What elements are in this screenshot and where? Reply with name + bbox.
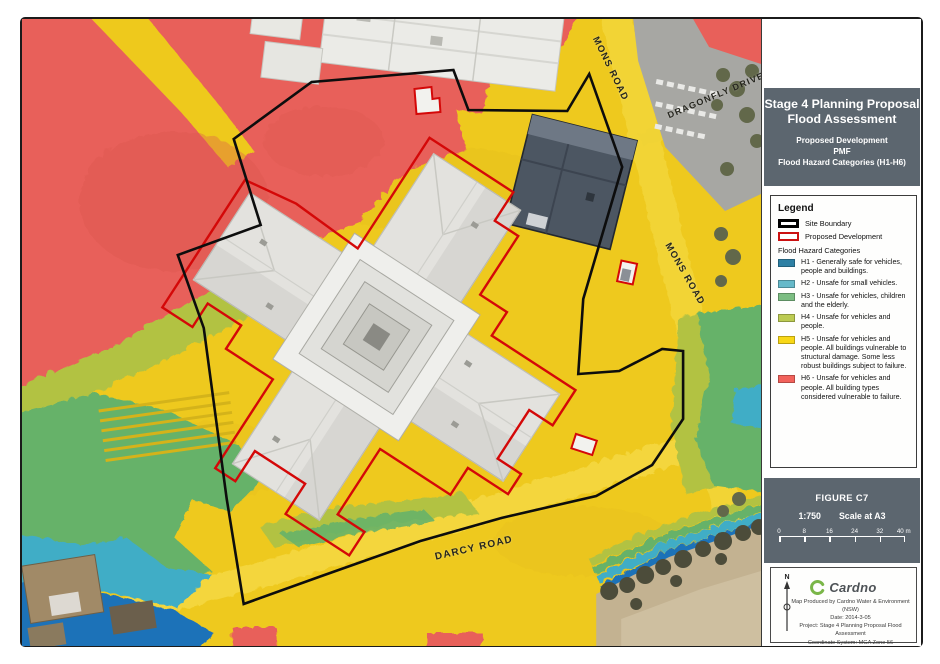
- scale-tick-32: 32: [876, 528, 883, 535]
- map-title-line1: Stage 4 Planning Proposal: [764, 97, 920, 112]
- credit-line-produced-by: Map Produced by Cardno Water & Environme…: [789, 598, 912, 614]
- map-sheet-sidebar: Stage 4 Planning Proposal Flood Assessme…: [762, 19, 921, 646]
- subtitle-hazard-categories: Flood Hazard Categories (H1-H6): [764, 157, 920, 168]
- subtitle-proposed-development: Proposed Development: [764, 135, 920, 146]
- h3-swatch: [778, 293, 795, 301]
- cardno-wordmark: Cardno: [829, 580, 876, 595]
- legend-item-h5: H5 - Unsafe for vehicles and people. All…: [778, 335, 910, 372]
- scale-note: Scale at A3: [839, 511, 886, 521]
- legend-item-proposed-development: Proposed Development: [778, 232, 910, 241]
- h1-label: H1 - Generally safe for vehicles, people…: [801, 258, 910, 276]
- scale-bar: 0 8 16 24 32 40 m: [779, 528, 905, 544]
- scale-ratio: 1:750: [798, 511, 821, 521]
- flood-hazard-categories-heading: Flood Hazard Categories: [778, 246, 910, 255]
- proposed-development-swatch: [778, 232, 799, 241]
- subtitle-pmf: PMF: [764, 146, 920, 157]
- scale-tick-24: 24: [851, 528, 858, 535]
- h6-swatch: [778, 375, 795, 383]
- legend-item-site-boundary: Site Boundary: [778, 219, 910, 228]
- credit-line-project: Project: Stage 4 Planning Proposal Flood…: [789, 622, 912, 638]
- figure-number: FIGURE C7: [764, 493, 920, 503]
- title-block: Stage 4 Planning Proposal Flood Assessme…: [764, 88, 920, 186]
- site-boundary-label: Site Boundary: [805, 219, 851, 228]
- legend: Legend Site Boundary Proposed Developmen…: [770, 195, 917, 468]
- proposed-development-label: Proposed Development: [805, 232, 882, 241]
- flood-map-canvas: MONS ROAD DRAGONFLY DRIVE MONS ROAD DARC…: [22, 19, 762, 646]
- north-arrow-icon: N: [780, 574, 794, 636]
- h2-label: H2 - Unsafe for small vehicles.: [801, 279, 910, 288]
- figure-block: FIGURE C7 1:750 Scale at A3 0 8 16 24 32…: [764, 478, 920, 563]
- h6-label: H6 - Unsafe for vehicles and people. All…: [801, 374, 910, 402]
- h1-swatch: [778, 259, 795, 267]
- h3-label: H3 - Unsafe for vehicles, children and t…: [801, 292, 910, 310]
- h4-swatch: [778, 314, 795, 322]
- h5-label: H5 - Unsafe for vehicles and people. All…: [801, 335, 910, 372]
- site-boundary-swatch: [778, 219, 799, 228]
- h2-swatch: [778, 280, 795, 288]
- h5-swatch: [778, 336, 795, 344]
- legend-item-h6: H6 - Unsafe for vehicles and people. All…: [778, 374, 910, 402]
- legend-item-h4: H4 - Unsafe for vehicles and people.: [778, 313, 910, 331]
- map-title-line2: Flood Assessment: [764, 112, 920, 127]
- legend-item-h3: H3 - Unsafe for vehicles, children and t…: [778, 292, 910, 310]
- legend-item-h2: H2 - Unsafe for small vehicles.: [778, 279, 910, 288]
- legend-item-h1: H1 - Generally safe for vehicles, people…: [778, 258, 910, 276]
- h4-label: H4 - Unsafe for vehicles and people.: [801, 313, 910, 331]
- aerial-flood-overlay: [22, 19, 761, 646]
- north-label: N: [780, 574, 794, 581]
- scale-tick-0: 0: [777, 528, 780, 535]
- credit-line-date: Date: 2014-3-05: [789, 614, 912, 622]
- scale-tick-16: 16: [826, 528, 833, 535]
- scale-tick-8: 8: [802, 528, 805, 535]
- scale-tick-40m: 40 m: [897, 528, 911, 535]
- legend-heading: Legend: [778, 203, 910, 214]
- credit-line-coordinate-system: Coordinate System: MGA Zone 56: [789, 639, 912, 647]
- cardno-logo-icon: [810, 580, 825, 595]
- credits-block: N Cardno Map Produced by Cardno Water & …: [770, 567, 917, 643]
